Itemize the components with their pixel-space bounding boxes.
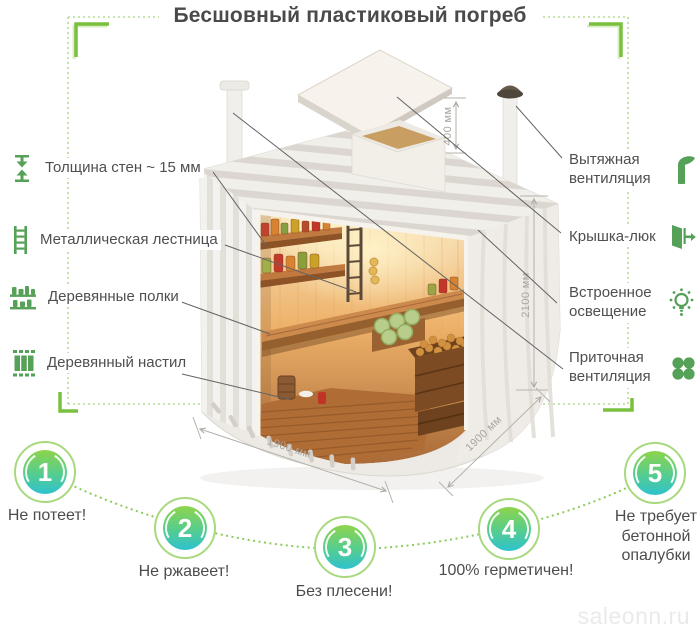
feature-number-1: 1 [38, 457, 52, 488]
exhaust-pipe [497, 86, 523, 187]
feature-badge-5: 5 [624, 442, 686, 504]
callout-hatch-lid: Крышка-люк [566, 220, 696, 254]
tank [176, 50, 585, 490]
feature-label-5: Не требует бетонной опалубки [606, 507, 700, 566]
feature-label-2: Не ржавеет! [124, 562, 244, 582]
callout-floor-label: Деревянный настил [44, 353, 189, 374]
callout-shelves-label: Деревянные полки [45, 287, 182, 308]
metal-ladder-icon [12, 226, 29, 254]
infographic: 400 мм 2100 мм 1900 мм 1900 мм Бесшовный… [0, 0, 700, 640]
feature-badge-3: 3 [314, 516, 376, 578]
feature-label-1: Не потеет! [0, 506, 107, 526]
dimension-body-height: 2100 мм [520, 272, 532, 317]
wooden-shelves-icon [10, 284, 37, 310]
feature-number-3: 3 [338, 532, 352, 563]
callout-floor: Деревянный настил [12, 346, 189, 380]
feature-badge-1: 1 [14, 441, 76, 503]
watermark: saleonn.ru [578, 603, 690, 630]
wall-thickness-icon [10, 155, 34, 182]
feature-number-4: 4 [502, 514, 516, 545]
feature-badge-2: 2 [154, 497, 216, 559]
callout-supply-vent: Приточная вентиляция [566, 346, 696, 390]
callout-exhaust-vent: Вытяжная вентиляция [566, 148, 696, 192]
callout-hatch-lid-label: Крышка-люк [566, 227, 659, 248]
callout-light-label: Встроенное освещение [566, 283, 664, 323]
callout-exhaust-vent-label: Вытяжная вентиляция [566, 150, 664, 190]
callout-shelves: Деревянные полки [10, 280, 182, 314]
callout-ladder: Металлическая лестница [12, 223, 221, 257]
feature-number-2: 2 [178, 513, 192, 544]
callout-wall-thickness-label: Толщина стен ~ 15 мм [42, 158, 204, 179]
callout-ladder-label: Металлическая лестница [37, 230, 221, 251]
callout-wall-thickness: Толщина стен ~ 15 мм [10, 151, 204, 185]
feature-number-5: 5 [648, 458, 662, 489]
feature-badge-4: 4 [478, 498, 540, 560]
feature-label-3: Без плесени! [284, 582, 404, 602]
built-in-light-icon [668, 288, 696, 318]
page-title-text: Бесшовный пластиковый погреб [159, 4, 540, 28]
feature-label-4: 100% герметичен! [426, 561, 586, 581]
callout-light: Встроенное освещение [566, 281, 696, 325]
hatch-lid-icon [669, 224, 696, 250]
supply-vent-icon [671, 356, 696, 381]
callout-supply-vent-label: Приточная вентиляция [566, 348, 664, 388]
page-title: Бесшовный пластиковый погреб [0, 4, 700, 28]
exhaust-vent-icon [670, 155, 696, 185]
wooden-floor-icon [12, 350, 36, 377]
